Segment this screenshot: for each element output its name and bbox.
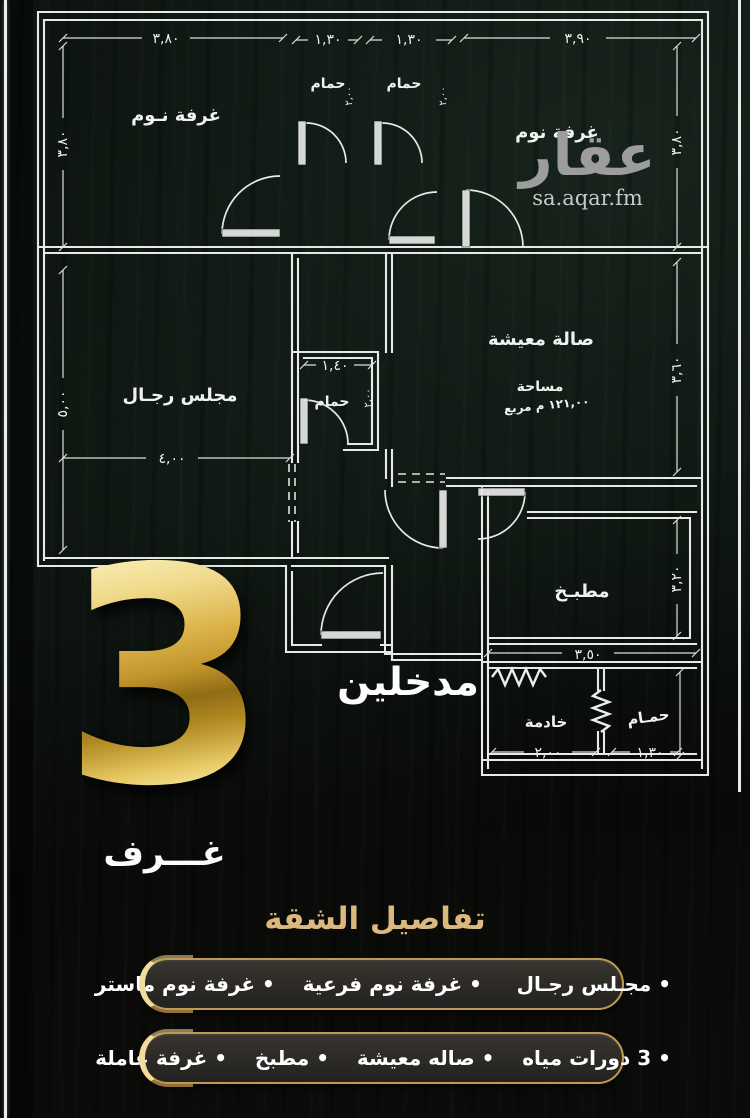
room-label-maid: خادمة xyxy=(525,713,568,731)
logo: عقار sa.aqar.fm xyxy=(505,126,670,209)
details-pill-amenities-text: • 3 دورات مياه • صاله معيشة • مطبخ • غرف… xyxy=(95,1046,671,1070)
room-label-bath2: حمام xyxy=(387,76,422,92)
dim-bedroom1-height: ٣,٨٠ xyxy=(55,130,71,157)
logo-site-url: sa.aqar.fm xyxy=(505,188,670,209)
dashed-openings xyxy=(289,247,445,522)
room-label-living: صالة معيشة xyxy=(488,329,594,350)
dim-bath1-width: ١,٣٠ xyxy=(314,32,341,48)
room-label-bath1: حمام xyxy=(311,76,346,92)
right-border-line xyxy=(738,0,741,792)
room-label-bath4: حمـام xyxy=(626,705,671,729)
dim-maid-width: ٢,٠٠ xyxy=(534,745,561,761)
room-label-kitchen: مطبـخ xyxy=(554,581,609,602)
details-pill-rooms: • مجـلس رجـال • غرفة نوم فرعية • غرفة نو… xyxy=(142,958,624,1010)
dim-majlis-height: ٥,٠٠ xyxy=(55,390,71,417)
dim-living-height: ٣,٦٠ xyxy=(669,356,685,383)
entrances-label: مدخلين xyxy=(318,660,498,705)
logo-wordmark: عقار xyxy=(505,126,670,184)
dim-bedroom2-width: ٣,٩٠ xyxy=(564,31,591,47)
dim-bath4-width: ١,٣٠ xyxy=(636,745,663,761)
dim-bath1-depth: ٢,٠٠ xyxy=(344,86,355,105)
dim-midbath-depth: ٢,٠٠ xyxy=(363,388,374,407)
room-label-area: مساحة xyxy=(517,379,564,395)
dim-kitchen-width: ٣,٥٠ xyxy=(574,647,601,663)
real-estate-poster: { "logo": { "name": "عقار", "site": "sa.… xyxy=(0,0,750,1118)
left-border-line xyxy=(4,0,7,1118)
dim-midbath-width: ١,٤٠ xyxy=(321,358,348,374)
details-title: تفاصيل الشقة xyxy=(190,901,560,937)
rooms-count-number: 3 xyxy=(62,552,267,805)
details-pill-rooms-text: • مجـلس رجـال • غرفة نوم فرعية • غرفة نو… xyxy=(95,972,671,996)
room-label-area-value: ١٢١,٠٠ م مربع xyxy=(503,394,590,416)
details-pill-amenities: • 3 دورات مياه • صاله معيشة • مطبخ • غرف… xyxy=(142,1032,624,1084)
room-label-midbath: حمام xyxy=(315,394,350,410)
rooms-count-label: غـــرف xyxy=(62,834,267,874)
zigzag-symbol-horizontal xyxy=(492,669,546,685)
dim-bedroom1-width: ٣,٨٠ xyxy=(152,31,179,47)
room-label-majlis: مجلس رجـال xyxy=(122,385,237,406)
dim-bath2-depth: ٢,٠٠ xyxy=(438,86,449,105)
dim-kitchen-height: ٣,٢٠ xyxy=(669,565,685,592)
room-label-bedroom1: غرفة نـوم xyxy=(131,105,221,126)
dim-bedroom2-height: ٣,٨٠ xyxy=(669,128,685,155)
dim-majlis-width: ٤,٠٠ xyxy=(158,451,185,467)
dim-bath2-width: ١,٣٠ xyxy=(395,32,422,48)
zigzag-symbol-vertical xyxy=(593,690,609,732)
